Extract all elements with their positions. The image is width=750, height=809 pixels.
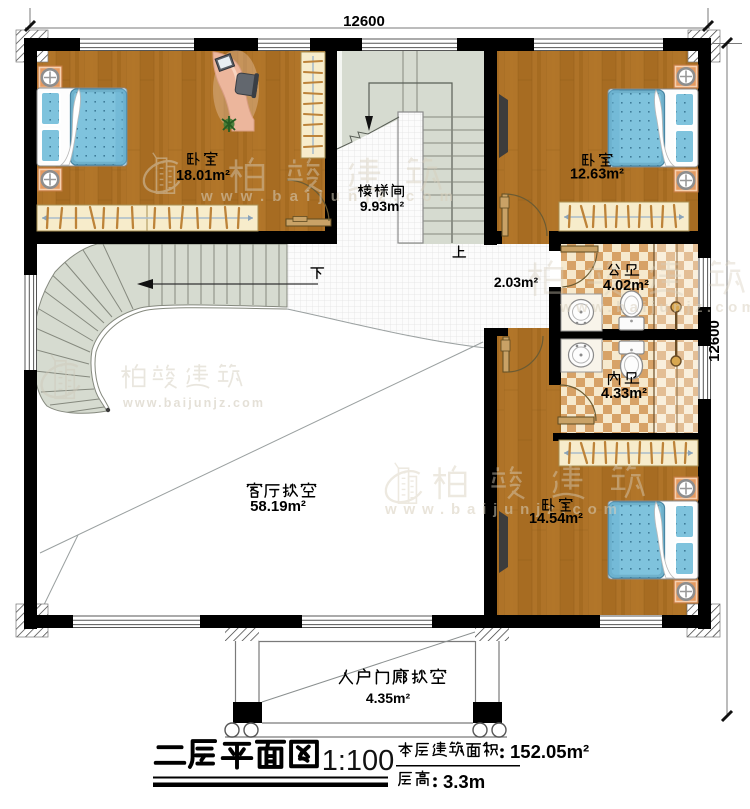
svg-text:4.33m²: 4.33m² [601,386,647,402]
svg-text:58.19m²: 58.19m² [250,498,306,515]
svg-text:14.54m²: 14.54m² [529,511,583,527]
svg-text:1:100: 1:100 [322,745,395,777]
svg-text:9.93m²: 9.93m² [360,198,405,214]
svg-text:3.3m: 3.3m [443,771,485,792]
svg-text:152.05m²: 152.05m² [510,741,589,762]
svg-text:4.02m²: 4.02m² [603,278,649,294]
svg-text:12.63m²: 12.63m² [570,167,624,183]
svg-text:12600: 12600 [706,320,723,362]
svg-text:12600: 12600 [343,13,385,30]
svg-text:www.baijunjz.com: www.baijunjz.com [559,299,750,316]
svg-text:18.01m²: 18.01m² [176,168,230,184]
svg-text:4.35m²: 4.35m² [366,690,411,706]
svg-text:2.03m²: 2.03m² [494,274,539,290]
